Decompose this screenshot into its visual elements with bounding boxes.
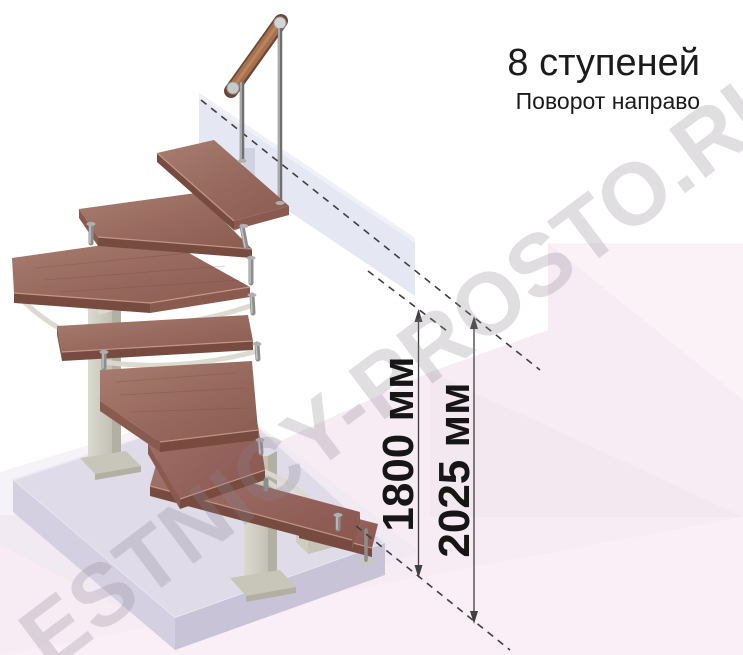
dimension-label-2025: 2025 мм bbox=[430, 382, 480, 557]
handrail-end-fitting bbox=[227, 82, 239, 94]
page-subtitle: Поворот направо bbox=[516, 88, 700, 115]
handrail-end-fitting bbox=[274, 17, 286, 29]
handrail-highlight bbox=[234, 24, 278, 86]
staircase-product-illustration: LESTNICY-PROSTO.RU 8 ступеней Поворот на… bbox=[0, 0, 743, 655]
page-title: 8 ступеней bbox=[507, 42, 700, 85]
step-5 bbox=[57, 315, 253, 361]
dimension-label-1800: 1800 мм bbox=[374, 356, 424, 531]
